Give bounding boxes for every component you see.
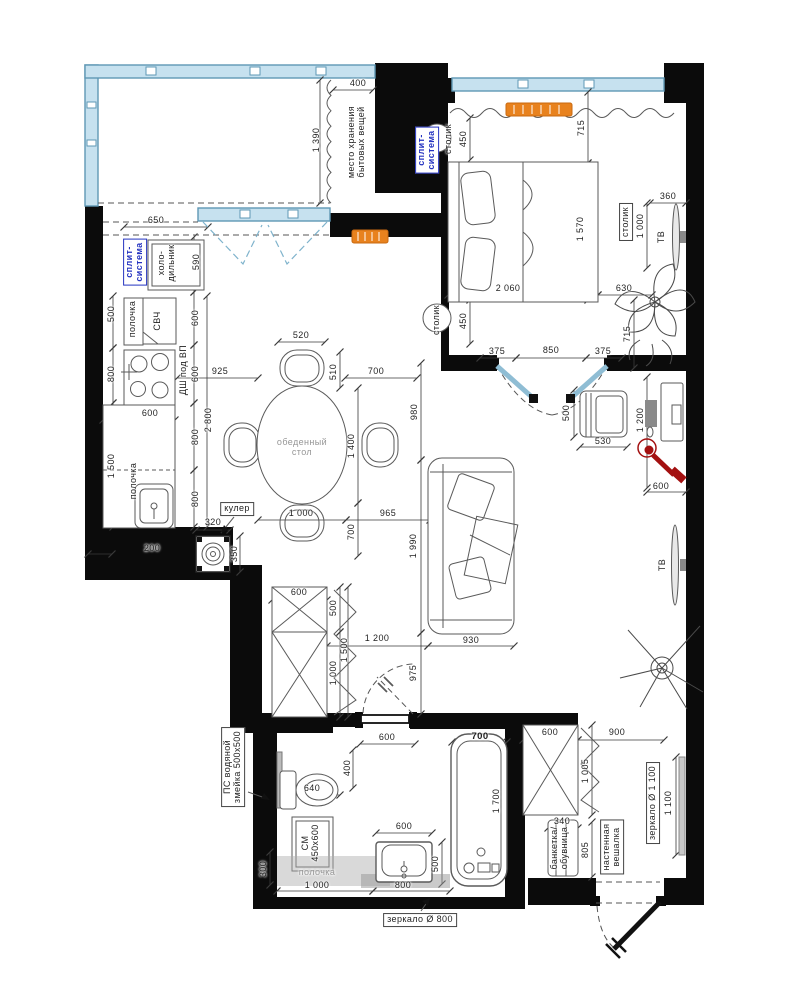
dim-label: 925: [212, 367, 228, 377]
dim-label: 805: [581, 842, 591, 858]
dim-label: 900: [609, 728, 625, 738]
dim-label: 360: [660, 192, 676, 202]
dim-label: 1 200: [636, 408, 646, 433]
dim-label: 520: [293, 331, 309, 341]
kitchen-shelf2-label: полочка: [129, 463, 139, 499]
dim-label: 800: [191, 491, 201, 507]
washer-label: СМ450х600: [301, 824, 321, 861]
dim-label: 375: [489, 347, 505, 357]
dim-label: 350: [230, 546, 240, 562]
dim-label: 400: [343, 760, 353, 776]
dim-label: 1 400: [347, 434, 357, 459]
mirror-bath-label: зеркало Ø 800: [383, 913, 457, 927]
dim-label: 600: [379, 733, 395, 743]
bedside-table-top-label: столик: [444, 124, 454, 154]
dim-label: 800: [191, 429, 201, 445]
dim-label: 600: [191, 366, 201, 382]
bath-shelf-label: полочка: [299, 868, 335, 878]
dim-label: 340: [554, 817, 570, 827]
dim-label: 200: [144, 544, 160, 554]
dim-label: 450: [459, 131, 469, 147]
wall-hanger-label: настеннаявешалка: [600, 820, 624, 875]
dim-label: 800: [395, 881, 411, 891]
tv-bedroom-label: ТВ: [657, 231, 667, 243]
dim-label: 500: [562, 405, 572, 421]
microwave-label: СВЧ: [153, 311, 163, 330]
bench-label: банкетка/обувница: [550, 826, 570, 869]
dim-label: 1 200: [365, 634, 390, 644]
split-system-kitchen-label: сплит-система: [123, 238, 147, 285]
dim-label: 980: [410, 404, 420, 420]
dim-label: 965: [380, 509, 396, 519]
dim-label: 1 390: [312, 128, 322, 153]
floor-plan: 4001 390место хранениябытовых вещей650сп…: [0, 0, 789, 1000]
dim-label: 850: [543, 346, 559, 356]
labels-layer: 4001 390место хранениябытовых вещей650сп…: [0, 0, 789, 1000]
dining-table-label: обеденныйстол: [277, 438, 327, 458]
dim-label: 1 700: [492, 789, 502, 814]
dim-label: 715: [577, 120, 587, 136]
tv-table-label: столик: [619, 203, 633, 241]
dim-label: 2 060: [496, 284, 521, 294]
storage-label: место хранениябытовых вещей: [347, 106, 367, 178]
dim-label: 320: [205, 518, 221, 528]
dim-label: 600: [653, 482, 669, 492]
dim-label: 715: [623, 326, 633, 342]
dim-label: 600: [291, 588, 307, 598]
dim-label: 1 990: [409, 534, 419, 559]
dim-label: 510: [329, 364, 339, 380]
dim-label: 600: [142, 409, 158, 419]
dim-label: 600: [542, 728, 558, 738]
dim-label: 600: [191, 310, 201, 326]
bedside-table-bottom-label: столик: [432, 305, 442, 335]
dim-label: 1 000: [636, 214, 646, 239]
dim-label: 800: [107, 366, 117, 382]
dim-label: 700: [471, 732, 488, 742]
dim-label: 530: [595, 437, 611, 447]
towel-rail-label: ПС водянойзмейка 500х500: [221, 727, 245, 807]
mirror-hall-label: зеркало Ø 1 100: [646, 762, 660, 844]
dim-label: 700: [368, 367, 384, 377]
dim-label: 640: [304, 784, 320, 794]
dim-label: 1 570: [576, 217, 586, 242]
dim-label: 500: [107, 306, 117, 322]
cooler-label: кулер: [220, 502, 254, 516]
dim-label: 1 100: [664, 791, 674, 816]
dim-label: 500: [431, 856, 441, 872]
dim-label: 500: [329, 600, 339, 616]
dim-label: 975: [409, 665, 419, 681]
split-system-bedroom-label: сплит-система: [415, 126, 439, 173]
dim-label: 1 000: [289, 509, 314, 519]
kitchen-shelf-label: полочка: [128, 301, 138, 337]
dim-label: 450: [459, 313, 469, 329]
fridge-label: холо-дильник: [157, 245, 177, 282]
dim-label: 630: [616, 284, 632, 294]
dim-label: 400: [350, 79, 366, 89]
dim-label: 1 000: [329, 661, 339, 686]
dim-label: 2 800: [204, 408, 214, 433]
dim-label: 590: [192, 254, 202, 270]
dim-label: 1 005: [581, 759, 591, 784]
tv-living-label: ТВ: [658, 559, 668, 571]
dim-label: 375: [595, 347, 611, 357]
dim-label: 700: [347, 524, 357, 540]
dim-label: 300: [259, 861, 269, 877]
dim-label: 930: [463, 636, 479, 646]
dim-label: 1 500: [107, 454, 117, 479]
dim-label: 600: [396, 822, 412, 832]
dim-label: 1 500: [340, 638, 350, 663]
dim-label: 1 000: [305, 881, 330, 891]
dim-label: 650: [148, 216, 164, 226]
oven-label: ДШ под ВП: [179, 345, 189, 395]
